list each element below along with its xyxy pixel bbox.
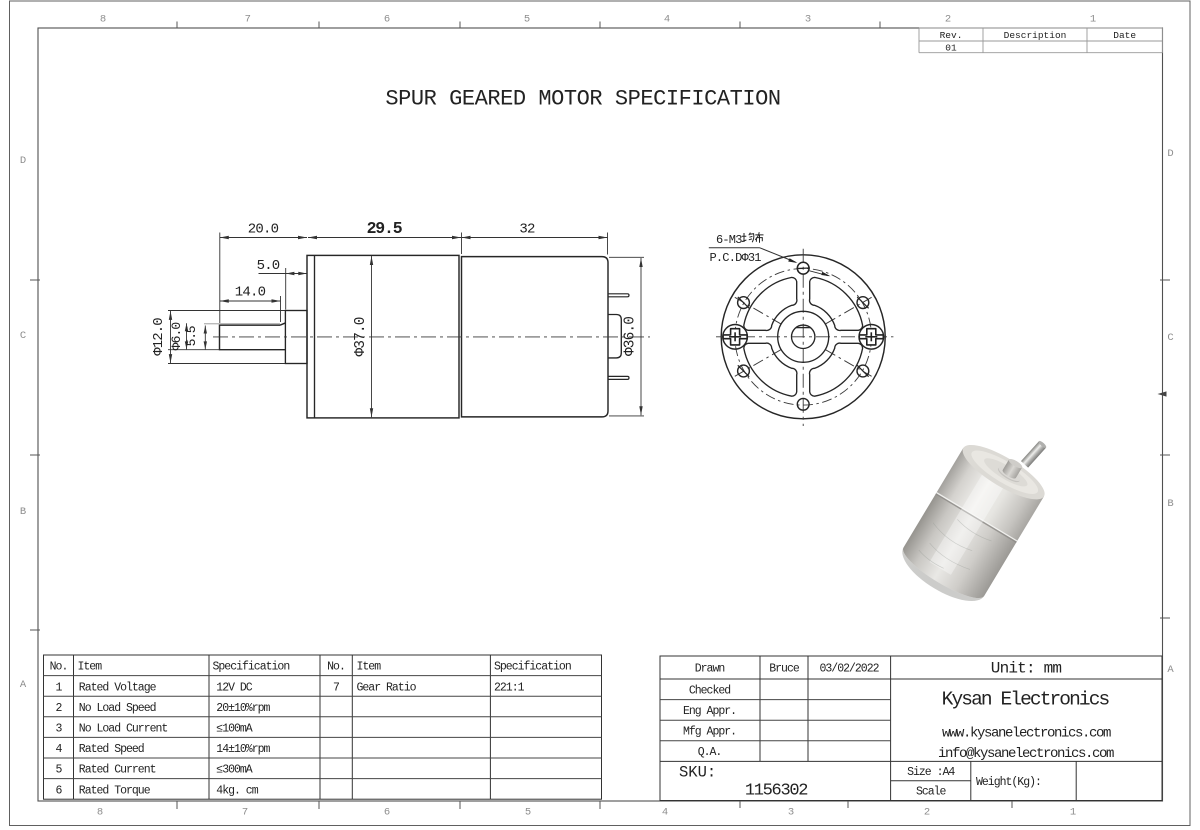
svg-text:Weight(Kg):: Weight(Kg): [976,776,1041,789]
svg-text:6: 6 [384,14,390,26]
svg-text:B: B [20,506,26,518]
svg-text:Φ6.0: Φ6.0 [169,323,184,351]
svg-text:03/02/2022: 03/02/2022 [819,663,879,676]
svg-text:2: 2 [924,807,930,819]
svg-text:Checked: Checked [689,684,730,697]
svg-text:Size :A4: Size :A4 [907,766,955,779]
svg-text:1156302: 1156302 [745,782,807,801]
svg-text:Specification: Specification [213,661,290,674]
svg-text:3: 3 [788,807,794,819]
svg-text:8: 8 [97,807,103,819]
svg-text:Date: Date [1113,30,1136,41]
svg-text:Rated Torque: Rated Torque [79,784,151,797]
svg-text:≤300mA: ≤300mA [216,764,253,777]
svg-text:3: 3 [805,14,811,26]
svg-text:5.0: 5.0 [257,258,280,274]
svg-text:Description: Description [1004,30,1067,41]
svg-text:6-M3: 6-M3 [716,233,742,247]
svg-text:32: 32 [519,222,535,238]
svg-text:Φ12.0: Φ12.0 [151,318,167,356]
svg-text:8: 8 [100,14,106,26]
svg-text:Bruce: Bruce [769,663,800,676]
svg-text:No Load Current: No Load Current [79,723,168,736]
svg-text:1: 1 [1090,14,1096,26]
svg-text:7: 7 [242,807,248,819]
svg-text:Rated Current: Rated Current [79,764,156,777]
svg-text:4: 4 [56,743,63,756]
svg-text:14.0: 14.0 [235,285,266,301]
svg-text:221:1: 221:1 [494,681,525,694]
svg-text:≤100mA: ≤100mA [216,723,253,736]
svg-text:Φ36.0: Φ36.0 [623,317,639,356]
svg-text:1: 1 [1070,807,1076,819]
svg-text:No.: No. [327,661,345,674]
svg-text:Q.A.: Q.A. [698,746,722,759]
svg-text:Drawn: Drawn [695,663,725,676]
svg-text:SPUR GEARED MOTOR SPECIFICATIO: SPUR GEARED MOTOR SPECIFICATION [385,87,780,112]
svg-text:2: 2 [945,14,951,26]
svg-text:C: C [20,330,26,342]
svg-text:Specification: Specification [494,661,571,674]
svg-text:P.C.DΦ31: P.C.DΦ31 [710,251,762,265]
svg-text:Scale: Scale [916,786,947,799]
svg-text:Item: Item [78,661,103,674]
svg-text:6: 6 [56,784,63,797]
svg-text:7: 7 [333,681,339,694]
svg-text:4: 4 [662,807,668,819]
svg-text:D: D [1167,148,1173,160]
svg-text:info@kysanelectronics.com: info@kysanelectronics.com [938,746,1114,762]
svg-text:Item: Item [357,661,382,674]
svg-text:2: 2 [56,702,63,715]
svg-text:Gear Ratio: Gear Ratio [357,681,417,694]
svg-text:14±10%rpm: 14±10%rpm [216,743,270,756]
svg-text:SKU:: SKU: [679,764,716,782]
svg-text:12V DC: 12V DC [216,681,253,694]
svg-text:No Load Speed: No Load Speed [79,702,156,715]
svg-text:3: 3 [56,723,63,736]
svg-text:5: 5 [524,14,530,26]
svg-text:Eng Appr.: Eng Appr. [683,705,736,718]
svg-text:5: 5 [525,807,531,819]
svg-text:C: C [1167,332,1173,344]
svg-text:Unit: mm: Unit: mm [991,660,1062,678]
svg-text:www.kysanelectronics.com: www.kysanelectronics.com [942,726,1111,742]
svg-text:5: 5 [56,764,63,777]
svg-text:4kg. cm: 4kg. cm [216,784,258,797]
svg-text:1: 1 [56,681,63,694]
svg-text:4: 4 [664,14,670,26]
svg-text:7: 7 [245,14,251,26]
svg-text:Mfg Appr.: Mfg Appr. [683,726,736,739]
svg-text:6: 6 [384,807,390,819]
svg-text:Φ37.0: Φ37.0 [353,317,369,356]
svg-text:Rated Voltage: Rated Voltage [79,681,157,694]
svg-text:5.5: 5.5 [184,326,199,346]
svg-text:A: A [1167,664,1174,676]
svg-text:Rev.: Rev. [940,30,963,41]
svg-text:20.0: 20.0 [248,222,279,238]
svg-text:No.: No. [50,661,68,674]
svg-text:29.5: 29.5 [367,219,403,238]
svg-text:B: B [1167,498,1173,510]
svg-text:01: 01 [945,42,957,53]
svg-text:20±10%rpm: 20±10%rpm [216,702,270,715]
svg-text:Kysan Electronics: Kysan Electronics [942,689,1110,711]
svg-text:Rated Speed: Rated Speed [79,743,144,756]
svg-text:D: D [20,155,26,167]
svg-text:A: A [20,679,27,691]
